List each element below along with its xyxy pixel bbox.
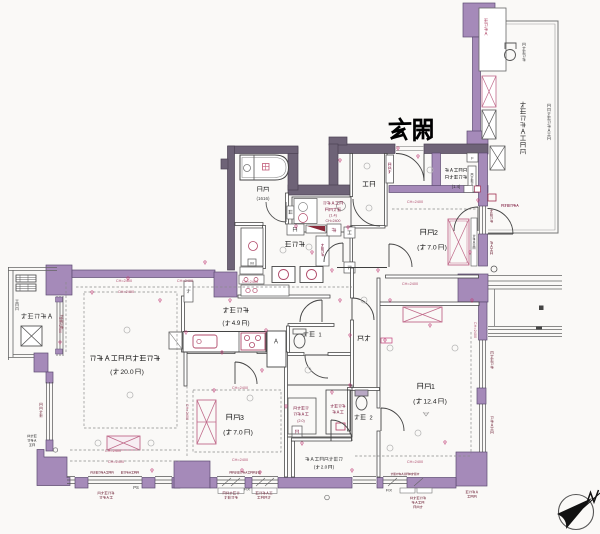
svg-text:2: 2 (369, 416, 372, 422)
svg-text:12.4: 12.4 (423, 398, 436, 405)
svg-text:): ) (251, 429, 253, 436)
svg-text:CH=2400: CH=2400 (118, 290, 134, 294)
svg-text:7.0: 7.0 (233, 429, 243, 436)
svg-text:CH=2400: CH=2400 (116, 279, 132, 283)
svg-text:CH=2400: CH=2400 (108, 460, 124, 464)
svg-text:CH=2400: CH=2400 (402, 282, 418, 286)
svg-text:4.9: 4.9 (232, 320, 241, 327)
svg-text:CH=2400: CH=2400 (326, 219, 341, 223)
svg-text:): ) (445, 398, 447, 405)
svg-text:CH=2400: CH=2400 (407, 200, 423, 204)
svg-text:CH=2400: CH=2400 (232, 458, 248, 462)
svg-text:CH=2400: CH=2400 (105, 449, 121, 453)
svg-text:2: 2 (434, 230, 438, 237)
svg-text:): ) (248, 320, 250, 327)
svg-text:7.0: 7.0 (427, 244, 437, 251)
svg-text:): ) (445, 244, 447, 251)
svg-text:1: 1 (318, 333, 321, 339)
svg-text:PS: PS (133, 485, 139, 490)
svg-text:CH=2400: CH=2400 (232, 386, 248, 390)
svg-text:1: 1 (431, 384, 435, 391)
svg-text:M: M (250, 261, 253, 266)
svg-text:3: 3 (240, 415, 244, 422)
svg-text:): ) (142, 369, 144, 376)
svg-text:CH=2400: CH=2400 (177, 279, 193, 283)
svg-text:(1616): (1616) (256, 196, 270, 201)
svg-text:CH=2400: CH=2400 (242, 280, 258, 284)
svg-text:FIX: FIX (244, 487, 251, 492)
svg-text:(2.0): (2.0) (297, 419, 304, 423)
svg-text:CH=2400: CH=2400 (407, 460, 423, 464)
svg-text:CH=2400: CH=2400 (185, 404, 189, 420)
svg-text:CH=2400: CH=2400 (473, 322, 477, 338)
svg-text:FIX: FIX (386, 488, 393, 493)
svg-text:(1.4): (1.4) (452, 184, 461, 189)
svg-text:20.0: 20.0 (120, 369, 133, 376)
svg-text:2.0: 2.0 (321, 465, 328, 470)
svg-text:(1.4): (1.4) (329, 214, 338, 218)
